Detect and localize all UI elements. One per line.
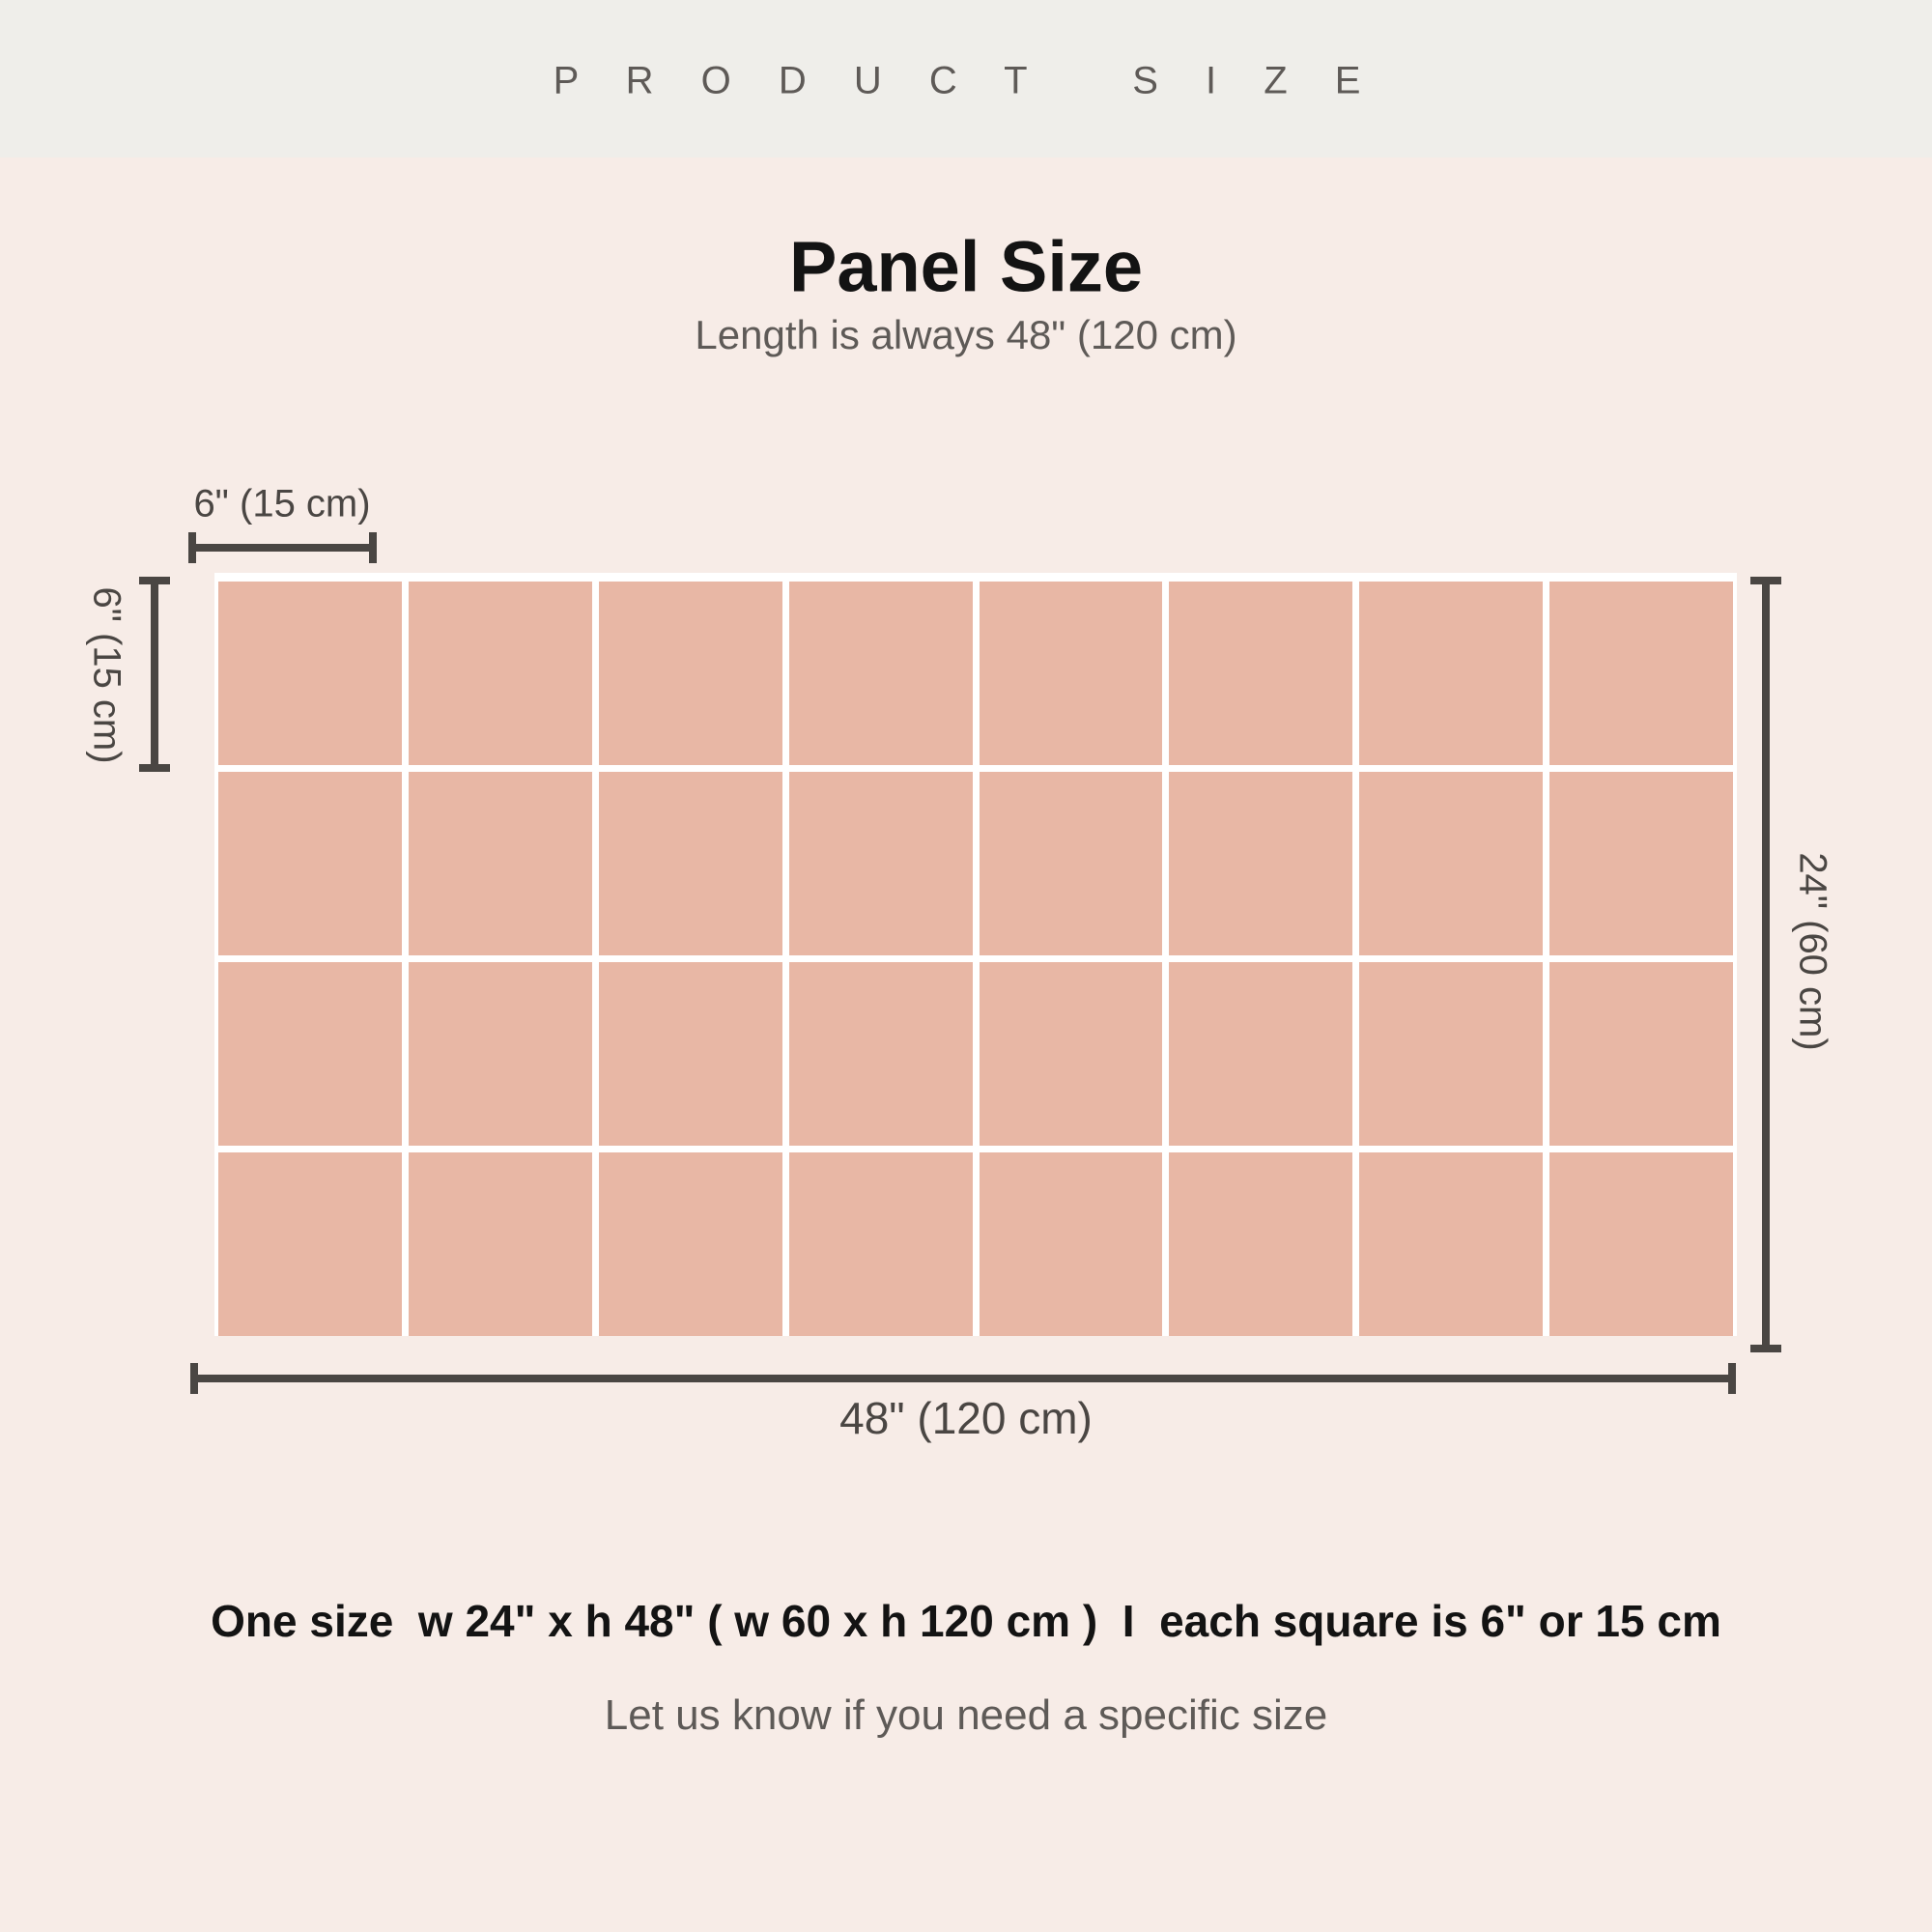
grid-square	[218, 1152, 402, 1336]
grid-square	[1359, 582, 1543, 765]
square-height-bracket	[151, 577, 158, 772]
grid-square	[1549, 962, 1733, 1146]
panel-grid	[214, 573, 1737, 1336]
panel-height-label: 24" (60 cm)	[1791, 852, 1834, 1050]
panel-size-title: Panel Size	[789, 226, 1143, 308]
panel-width-label: 48" (120 cm)	[839, 1392, 1093, 1444]
grid-square	[1169, 582, 1352, 765]
panel-width-bracket	[190, 1375, 1736, 1382]
grid-square	[218, 772, 402, 955]
grid-square	[1169, 772, 1352, 955]
grid-square	[980, 582, 1163, 765]
grid-square	[789, 1152, 973, 1336]
grid-square	[409, 962, 592, 1146]
grid-square	[1359, 1152, 1543, 1336]
panel-height-bracket	[1762, 577, 1770, 1352]
grid-square	[980, 772, 1163, 955]
grid-square	[789, 772, 973, 955]
square-width-bracket	[188, 544, 377, 552]
grid-square	[599, 1152, 782, 1336]
grid-square	[1549, 772, 1733, 955]
panel-size-subtitle: Length is always 48" (120 cm)	[695, 312, 1236, 358]
square-height-label: 6" (15 cm)	[85, 586, 128, 763]
square-width-label: 6" (15 cm)	[193, 483, 370, 526]
grid-square	[1169, 962, 1352, 1146]
grid-square	[789, 962, 973, 1146]
grid-square	[218, 582, 402, 765]
grid-square	[980, 1152, 1163, 1336]
specific-size-note: Let us know if you need a specific size	[605, 1691, 1327, 1740]
product-size-infographic: P R O D U C T S I Z E Panel Size Length …	[0, 0, 1932, 1932]
grid-square	[980, 962, 1163, 1146]
grid-square	[1359, 962, 1543, 1146]
grid-square	[1359, 772, 1543, 955]
grid-square	[409, 772, 592, 955]
grid-square	[599, 772, 782, 955]
grid-square	[789, 582, 973, 765]
grid-square	[1169, 1152, 1352, 1336]
one-size-summary: One size w 24" x h 48" ( w 60 x h 120 cm…	[211, 1595, 1721, 1647]
grid-square	[599, 582, 782, 765]
header-band: P R O D U C T S I Z E	[0, 0, 1932, 157]
grid-square	[1549, 1152, 1733, 1336]
grid-square	[218, 962, 402, 1146]
grid-square	[599, 962, 782, 1146]
grid-square	[409, 1152, 592, 1336]
grid-square	[1549, 582, 1733, 765]
page-title: P R O D U C T S I Z E	[554, 60, 1379, 103]
grid-square	[409, 582, 592, 765]
